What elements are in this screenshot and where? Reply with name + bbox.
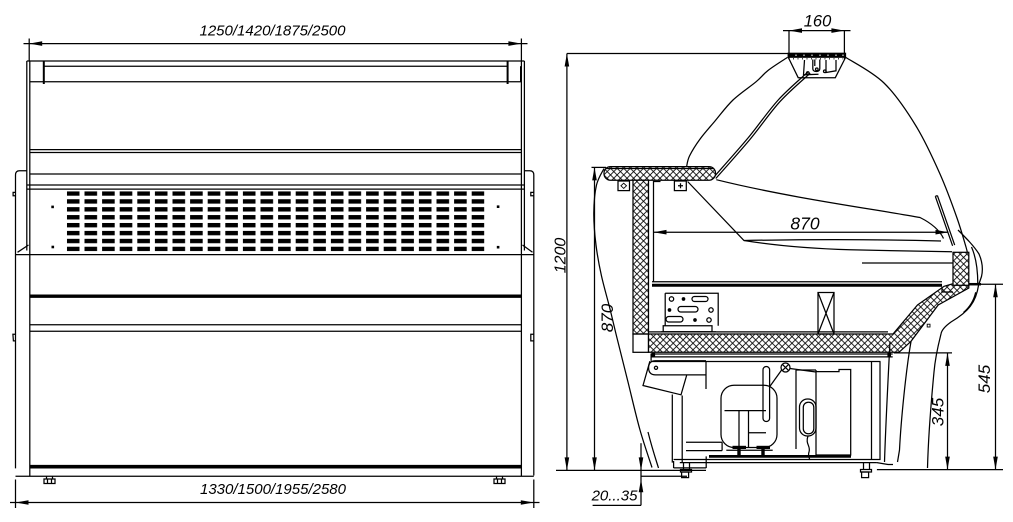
svg-text:1250/1420/1875/2500: 1250/1420/1875/2500	[200, 23, 347, 40]
svg-text:160: 160	[804, 13, 832, 31]
svg-text:870: 870	[598, 303, 617, 332]
svg-text:545: 545	[975, 364, 994, 393]
svg-text:1200: 1200	[553, 238, 570, 274]
svg-text:345: 345	[929, 397, 948, 426]
svg-text:20...35: 20...35	[591, 488, 639, 505]
svg-text:1330/1500/1955/2580: 1330/1500/1955/2580	[200, 481, 347, 498]
svg-text:870: 870	[790, 214, 819, 234]
